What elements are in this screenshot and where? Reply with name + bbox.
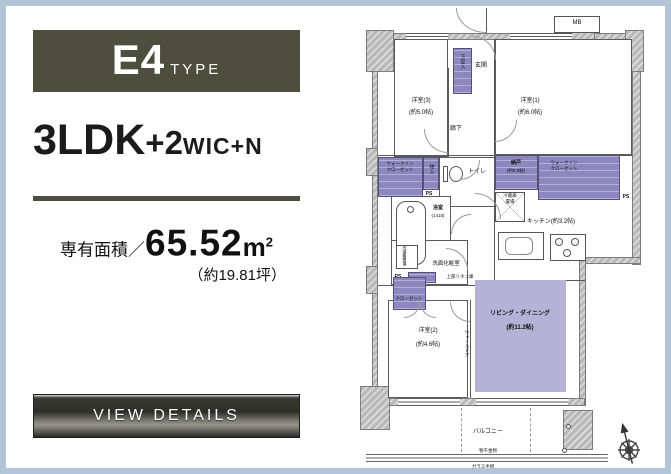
stove-burner-3	[563, 249, 571, 257]
area-value: 65.52	[145, 223, 243, 264]
view-details-button[interactable]: VIEW DETAILS	[33, 394, 300, 438]
label-walkin-closet-right: ウォークイン クローゼット	[551, 160, 578, 172]
label-bedroom2-size: (約4.6帖)	[416, 342, 440, 350]
type-suffix: TYPE	[170, 61, 221, 78]
area-label: 専有面積／	[60, 241, 145, 260]
wall-right-lower	[579, 260, 586, 406]
kitchen-sink	[505, 237, 533, 255]
label-bedroom3-size: (約5.0帖)	[409, 110, 433, 118]
stove-burner-1	[555, 238, 563, 246]
label-hallway: 廊下	[450, 126, 462, 134]
label-linen-note: 上部リネン庫	[447, 274, 474, 280]
pillar-top-left	[366, 30, 394, 72]
label-kitchen: キッチン(約3.2帖)	[527, 219, 575, 227]
washer-space	[396, 245, 418, 269]
balcony-post-1	[566, 424, 571, 429]
floorplan-card: E4TYPE 3LDK+2WIC+N 専有面積／65.52m2 （約19.81坪…	[0, 0, 671, 474]
type-header: E4TYPE	[33, 30, 300, 92]
label-shoe-cabinet: 下足入	[459, 54, 465, 69]
wall-walldoor	[470, 300, 471, 398]
wall-corridor-left	[448, 68, 449, 158]
layout-line: 3LDK+2WIC+N	[33, 110, 300, 180]
label-bedroom3: 洋室(3)	[411, 98, 430, 106]
label-bath: 浴室	[433, 205, 443, 212]
label-bedroom1: 洋室(1)	[520, 98, 539, 106]
stove-burner-2	[571, 238, 579, 246]
door-arc-bath	[451, 214, 471, 234]
label-living: リビング・ダイニング	[490, 311, 550, 319]
floorplan-diagram: MB 下足入 玄関 洋室(3) (約5.0帖) 洋室(1) (約6.0帖) 廊下…	[358, 8, 668, 474]
label-wall-door: ウォールドア	[464, 330, 469, 357]
label-fridge: 冷蔵庫 置場	[503, 193, 517, 205]
area-unit: m2	[243, 232, 273, 262]
window-living-balcony	[476, 398, 568, 406]
balcony-rail	[366, 454, 608, 462]
label-bedroom2: 洋室(2)	[418, 328, 437, 336]
balcony-divider-2	[530, 408, 531, 452]
layout-main: 3LDK	[33, 116, 145, 164]
label-glass-rail: ガラス手摺	[472, 464, 494, 470]
pillar-bottom-left	[360, 386, 390, 430]
label-ps-2: PS	[623, 194, 630, 201]
window-room2-balcony	[398, 398, 460, 406]
label-ps-1: PS	[426, 191, 433, 198]
label-entrance: 玄関	[475, 63, 487, 71]
layout-plus2: +2	[145, 124, 183, 161]
balcony-divider-1	[461, 408, 462, 452]
room-bedroom1	[495, 39, 632, 155]
bathtub-faucet	[407, 206, 414, 213]
wall-left	[372, 33, 378, 406]
pillar-balcony-right	[563, 410, 593, 450]
balcony-post-2	[562, 448, 567, 453]
label-nando-size: (約0.8帖)	[507, 168, 525, 174]
toilet-tank	[443, 166, 448, 182]
pillar-mid-left-1	[366, 148, 378, 176]
type-main: E4	[112, 36, 165, 83]
label-closet: クローゼット	[396, 296, 423, 302]
label-balcony: バルコニー	[473, 429, 503, 437]
label-washer: 洗濯機置場	[402, 246, 406, 266]
label-nando: 納戸	[511, 160, 521, 167]
layout-plusn: +N	[231, 133, 263, 159]
label-small-storage: 物入	[428, 164, 434, 174]
wall-step	[579, 257, 641, 264]
label-laundry-fitting: 物干金物	[479, 448, 497, 454]
label-mb: MB	[573, 20, 582, 28]
layout-wic: WIC	[183, 133, 231, 159]
label-bedroom1-size: (約6.0帖)	[518, 110, 542, 118]
label-walkin-closet-left: ウォークイン クローゼット	[387, 161, 414, 173]
label-bath-size: (1418)	[431, 213, 444, 219]
label-living-size: (約11.2帖)	[506, 325, 533, 333]
area-tsubo: （約19.81坪）	[33, 264, 286, 285]
divider-bar	[33, 196, 300, 201]
compass-icon	[608, 420, 650, 470]
entrance-door-arc	[456, 8, 486, 33]
entrance-door-line	[486, 8, 487, 33]
pillar-mid-left-2	[366, 266, 378, 294]
living-dining-area	[475, 280, 566, 392]
